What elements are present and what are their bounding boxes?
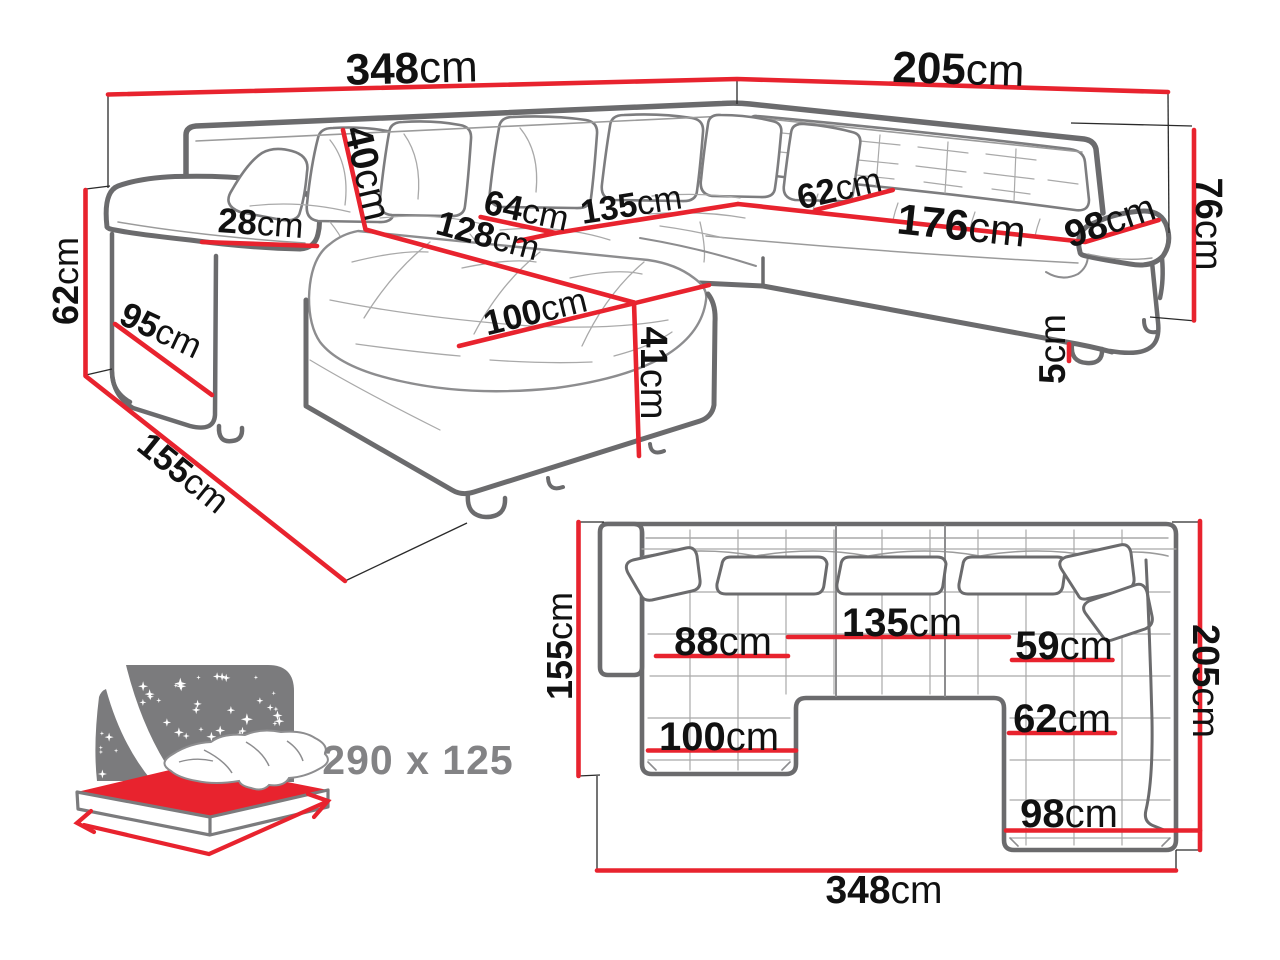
svg-text:135cm: 135cm <box>842 601 962 645</box>
svg-text:100cm: 100cm <box>659 715 779 759</box>
svg-text:290 x 125: 290 x 125 <box>322 737 513 783</box>
svg-text:28cm: 28cm <box>217 201 305 246</box>
svg-text:5cm: 5cm <box>1032 314 1073 384</box>
svg-text:348cm: 348cm <box>345 42 478 94</box>
svg-text:62cm: 62cm <box>45 237 86 325</box>
svg-text:98cm: 98cm <box>1020 792 1118 836</box>
svg-text:155cm: 155cm <box>539 592 580 700</box>
svg-text:205cm: 205cm <box>892 43 1026 96</box>
svg-text:88cm: 88cm <box>674 620 772 664</box>
svg-text:41cm: 41cm <box>632 327 674 420</box>
svg-text:348cm: 348cm <box>825 869 942 912</box>
svg-text:205cm: 205cm <box>1184 624 1226 738</box>
svg-text:76cm: 76cm <box>1187 178 1229 271</box>
svg-text:59cm: 59cm <box>1015 624 1113 668</box>
svg-text:62cm: 62cm <box>1013 697 1111 741</box>
